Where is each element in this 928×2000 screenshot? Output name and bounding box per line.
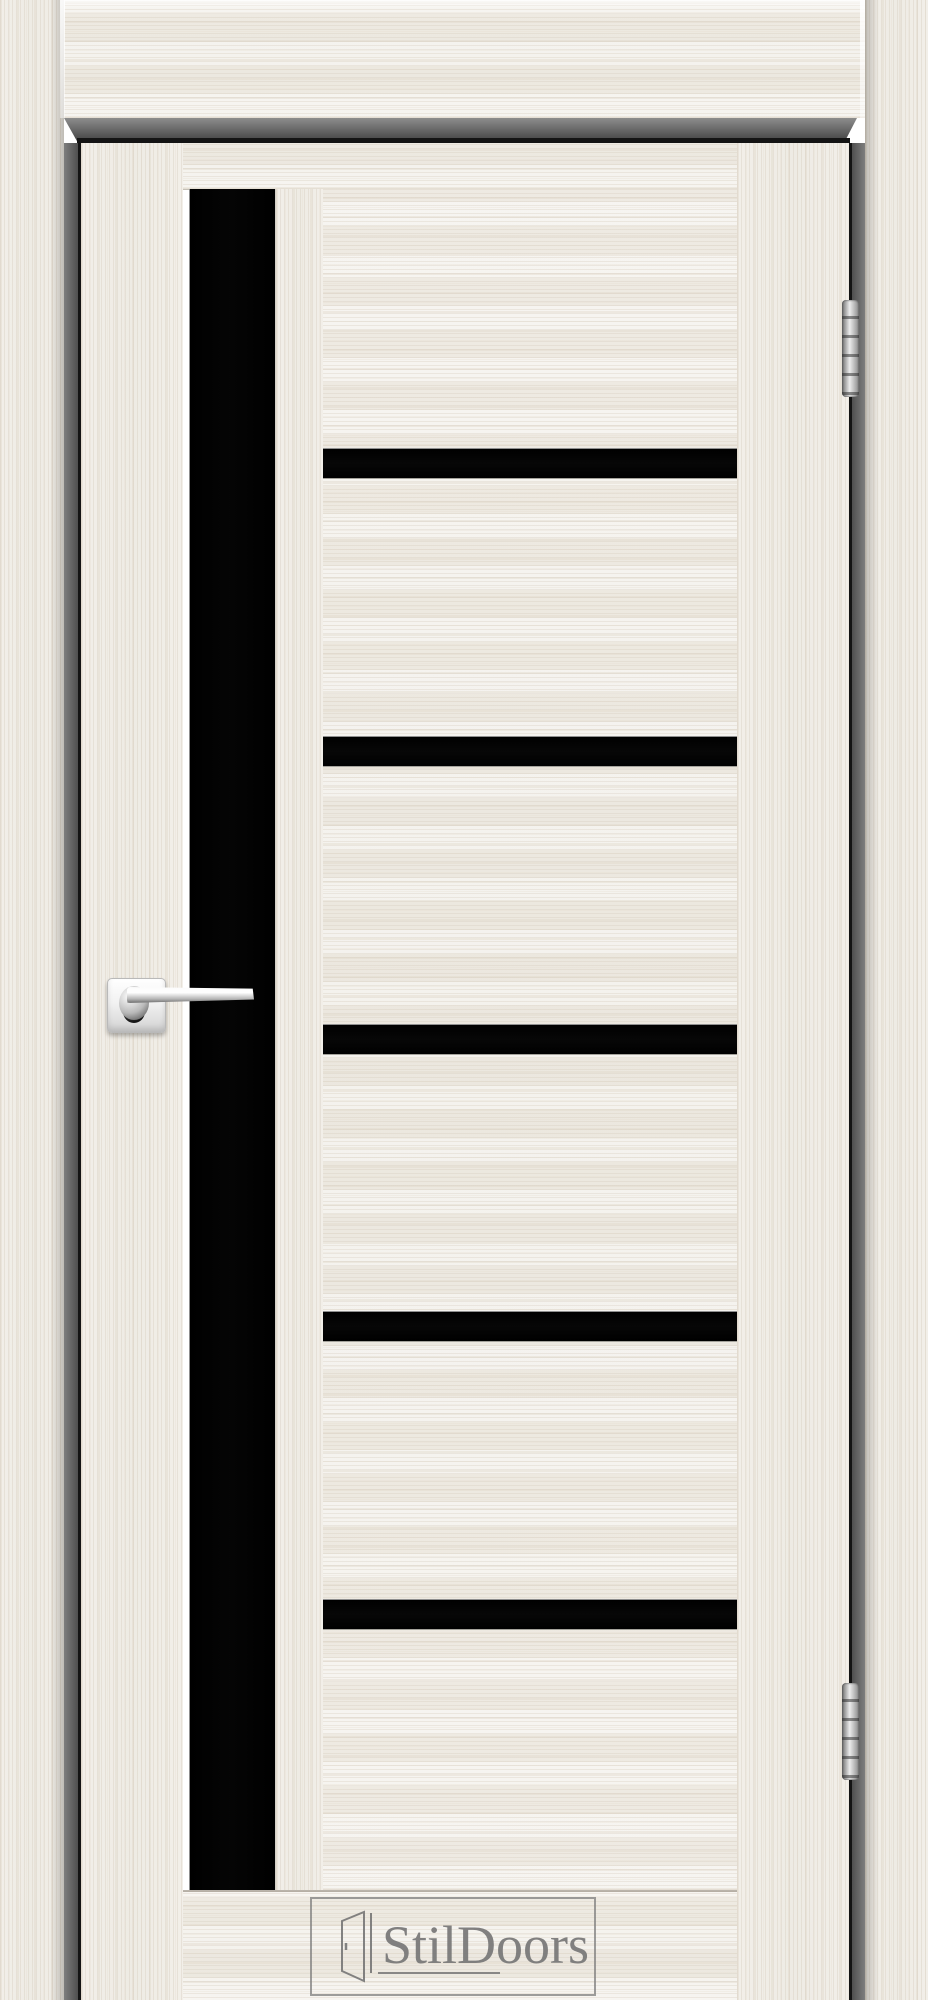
door-handle: [107, 978, 337, 1038]
door-panel-column: [323, 189, 737, 1890]
black-glass-strip-2: [323, 736, 737, 767]
casing-edge-shadow: [865, 0, 879, 2000]
handle-lever: [127, 987, 254, 1003]
black-glass-strip-1: [323, 448, 737, 479]
frame-reveal-left: [64, 143, 78, 2000]
casing-miter-joint-left: [60, 0, 65, 118]
open-door-icon: [338, 1909, 380, 1985]
hinge-knuckles: [842, 300, 859, 397]
frame-head-casing: [64, 0, 865, 118]
door-stile-right: [737, 143, 849, 2000]
brand-logo-plate: StilDoors: [310, 1897, 596, 1996]
door-product-photo: StilDoors: [0, 0, 928, 2000]
casing-miter-joint-right: [860, 0, 865, 118]
black-glass-strip-3: [323, 1024, 737, 1055]
black-glass-strip-4: [323, 1311, 737, 1342]
hinge-knuckles: [842, 1683, 859, 1780]
door-stile-left: [81, 143, 183, 2000]
door-top-rail: [183, 143, 737, 190]
frame-casing-right: [865, 0, 928, 2000]
black-glass-vertical-insert: [189, 189, 277, 1890]
door-leaf: [81, 143, 849, 2000]
hinge-bottom: [842, 1683, 859, 1780]
casing-edge-shadow: [50, 0, 64, 2000]
hinge-top: [842, 300, 859, 397]
casing-highlight: [64, 0, 865, 8]
door-mullion: [275, 189, 324, 1890]
frame-casing-left: [0, 0, 64, 2000]
brand-logo-text: StilDoors: [382, 1918, 589, 1972]
black-glass-strip-5: [323, 1599, 737, 1630]
